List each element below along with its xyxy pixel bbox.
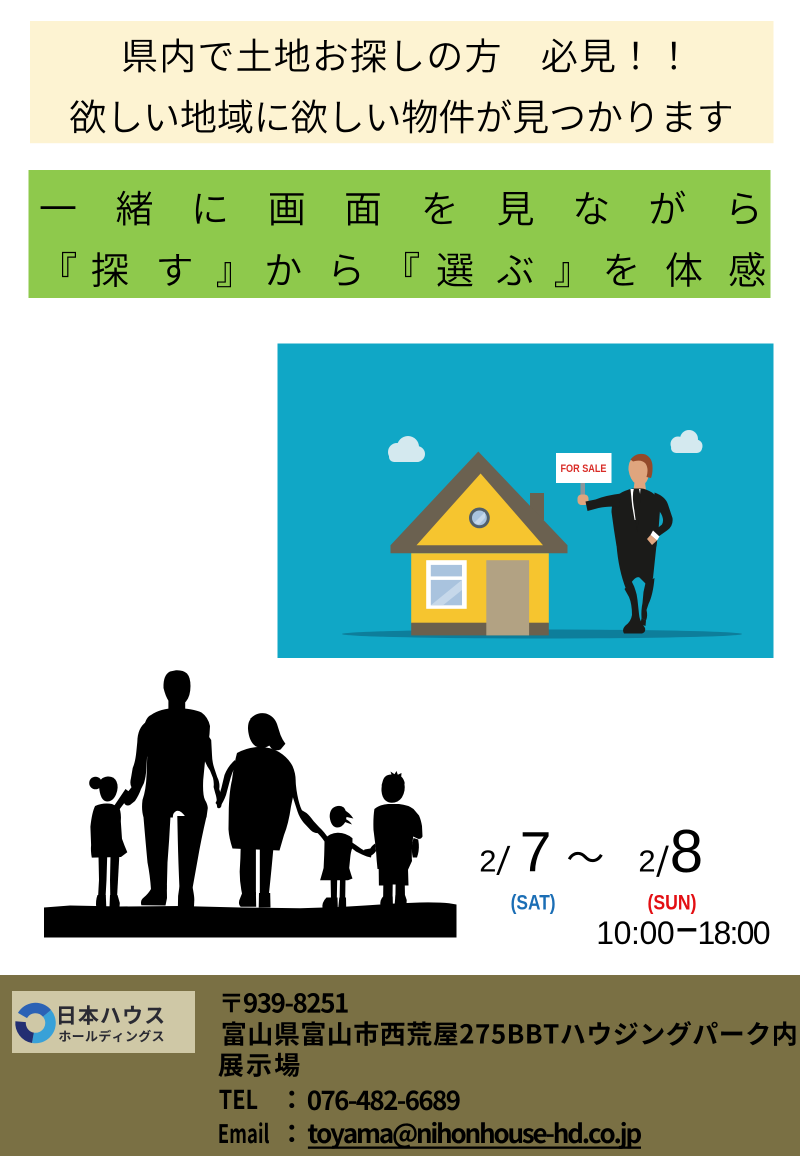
svg-text:10:00: 10:00 (596, 915, 675, 951)
svg-text:7: 7 (520, 820, 552, 884)
svg-text:18:00: 18:00 (698, 915, 771, 951)
svg-text:8: 8 (670, 818, 703, 885)
svg-text:(SAT): (SAT) (511, 891, 556, 914)
svg-text:2: 2 (638, 843, 655, 878)
svg-text:(SUN): (SUN) (648, 891, 697, 914)
svg-text:2: 2 (479, 843, 496, 878)
svg-text:FOR SALE: FOR SALE (561, 463, 607, 475)
